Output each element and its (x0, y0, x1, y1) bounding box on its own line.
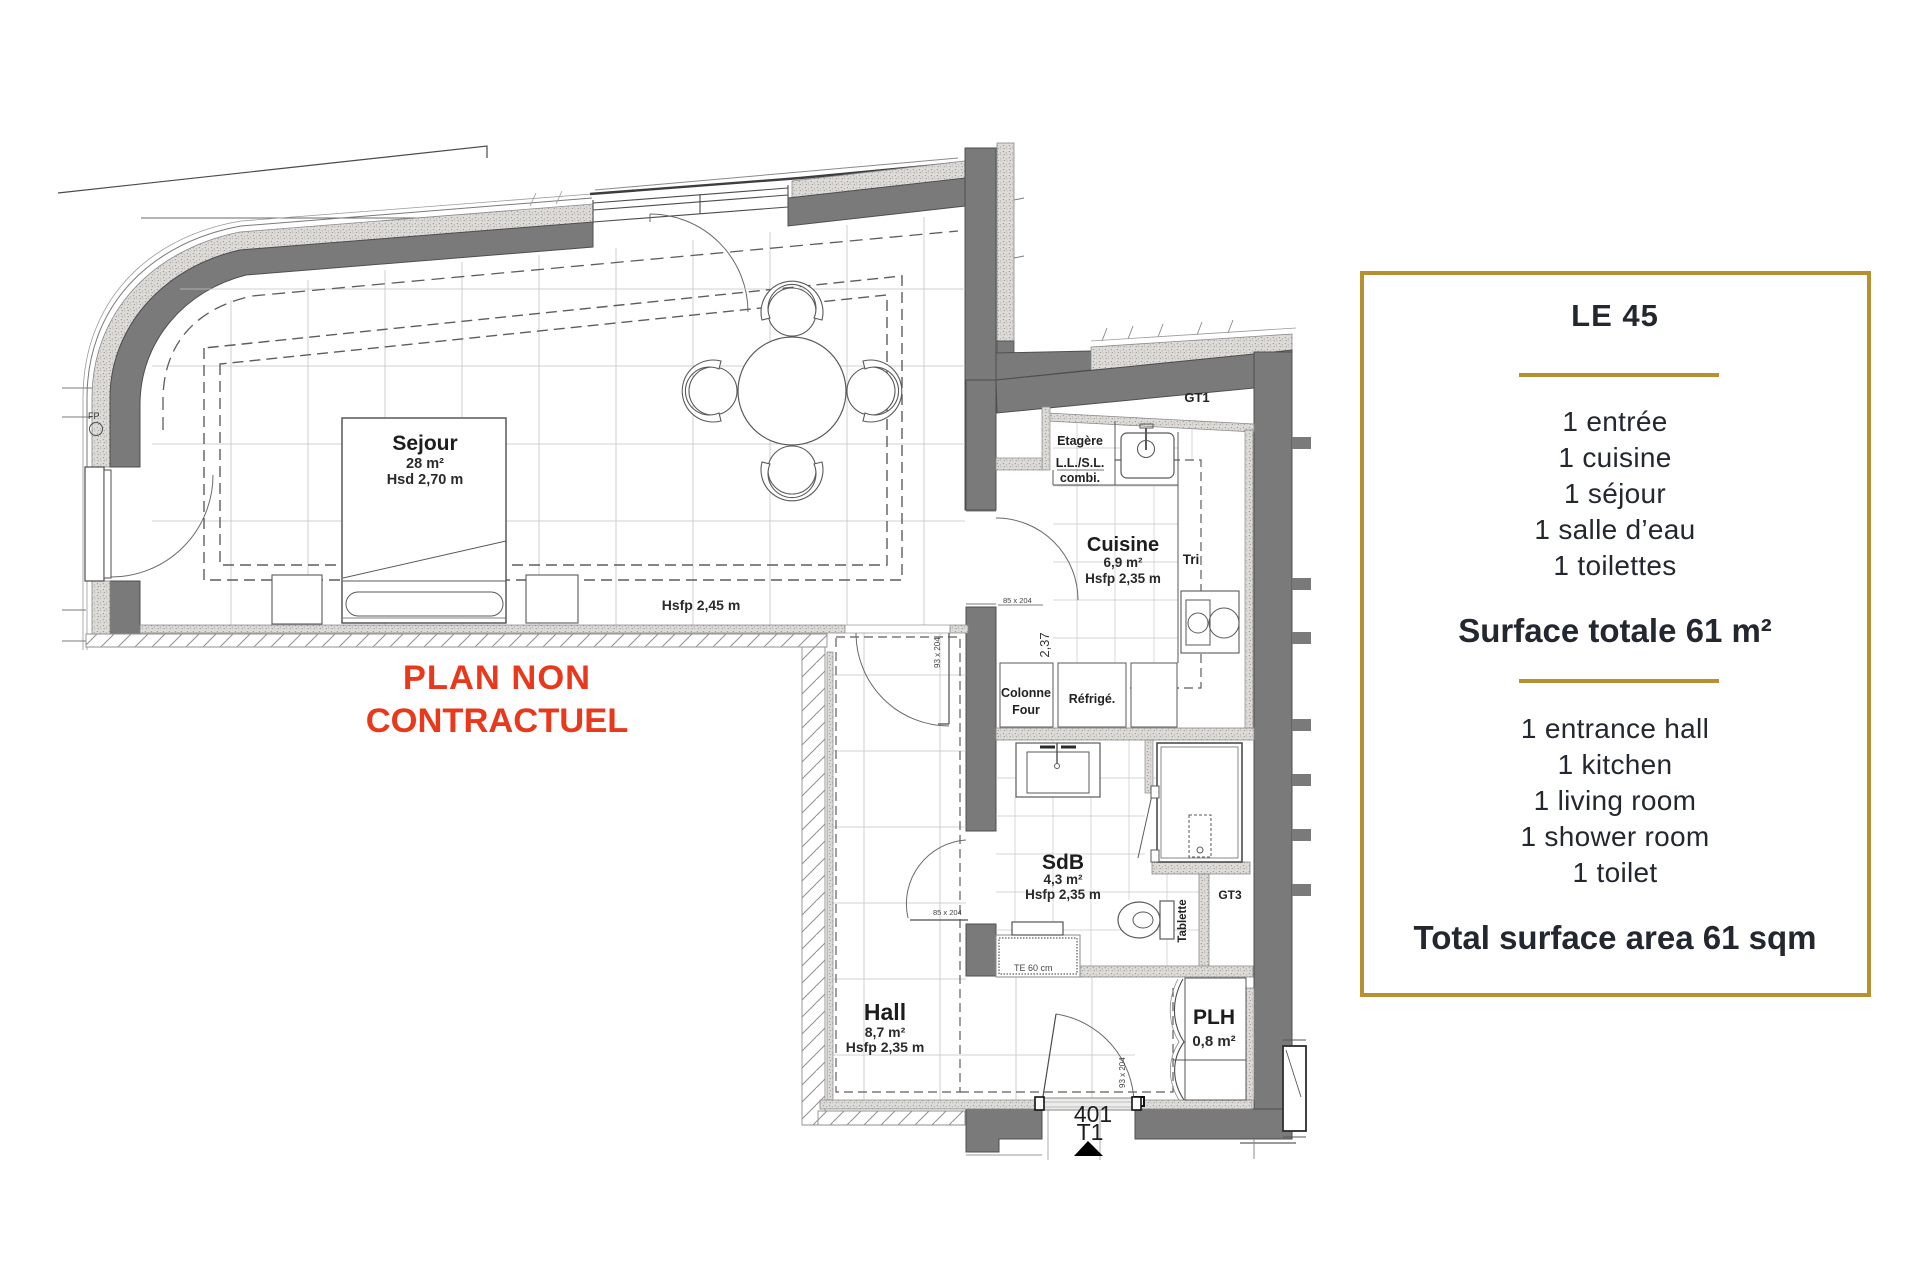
svg-text:0,8 m²: 0,8 m² (1192, 1033, 1235, 1050)
svg-text:2,37: 2,37 (1037, 632, 1052, 657)
svg-text:28 m²: 28 m² (406, 456, 444, 472)
svg-text:Hsfp 2,35 m: Hsfp 2,35 m (1025, 887, 1101, 902)
svg-text:Hsd 2,70 m: Hsd 2,70 m (387, 472, 464, 488)
svg-text:GT3: GT3 (1218, 888, 1242, 902)
svg-text:93 x 204: 93 x 204 (933, 637, 942, 668)
svg-text:Tri: Tri (1183, 552, 1200, 567)
svg-text:Hsfp 2,35 m: Hsfp 2,35 m (846, 1039, 925, 1055)
svg-text:SdB: SdB (1042, 851, 1084, 874)
svg-text:93 x 204: 93 x 204 (1118, 1057, 1127, 1088)
svg-text:L.L./S.L.: L.L./S.L. (1056, 456, 1105, 470)
svg-text:combi.: combi. (1060, 471, 1100, 485)
svg-text:Tablette: Tablette (1177, 899, 1189, 942)
svg-text:PLAN NON: PLAN NON (403, 659, 591, 697)
svg-text:T1: T1 (1077, 1119, 1104, 1145)
svg-text:Sejour: Sejour (392, 432, 457, 455)
svg-text:Four: Four (1012, 703, 1040, 717)
svg-text:TE 60 cm: TE 60 cm (1014, 963, 1053, 973)
svg-text:Hsfp 2,45 m: Hsfp 2,45 m (662, 597, 741, 613)
svg-text:Hall: Hall (864, 999, 906, 1025)
svg-text:Colonne: Colonne (1001, 686, 1051, 700)
svg-text:FP: FP (88, 411, 100, 421)
svg-text:Hsfp 2,35 m: Hsfp 2,35 m (1085, 571, 1161, 586)
svg-text:GT1: GT1 (1184, 390, 1209, 405)
svg-text:8,7 m²: 8,7 m² (865, 1024, 906, 1040)
svg-text:Réfrigé.: Réfrigé. (1069, 692, 1116, 706)
svg-text:6,9 m²: 6,9 m² (1103, 555, 1143, 570)
svg-text:Cuisine: Cuisine (1087, 534, 1159, 556)
svg-text:PLH: PLH (1193, 1006, 1235, 1029)
svg-text:85 x 204: 85 x 204 (1003, 596, 1032, 605)
svg-text:Etagère: Etagère (1057, 434, 1103, 448)
svg-text:CONTRACTUEL: CONTRACTUEL (366, 702, 629, 740)
svg-text:4,3 m²: 4,3 m² (1043, 872, 1083, 887)
svg-text:85 x 204: 85 x 204 (933, 908, 962, 917)
